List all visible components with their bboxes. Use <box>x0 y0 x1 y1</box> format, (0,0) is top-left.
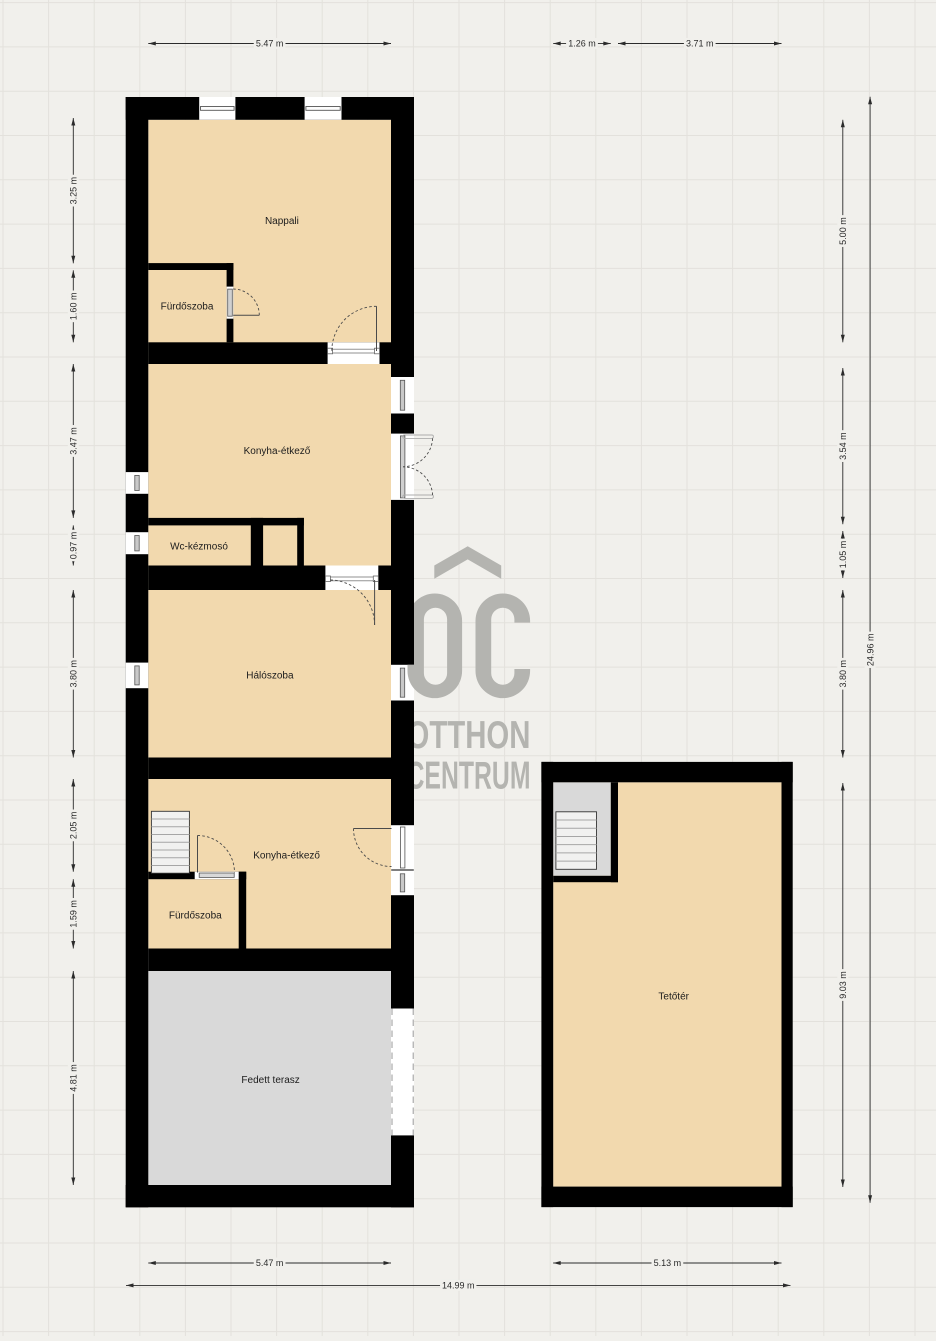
svg-text:Fürdőszoba: Fürdőszoba <box>161 302 214 313</box>
svg-text:4.81 m: 4.81 m <box>68 1064 78 1092</box>
svg-text:Nappali: Nappali <box>265 216 299 227</box>
svg-text:5.13 m: 5.13 m <box>654 1258 682 1268</box>
svg-text:1.26 m: 1.26 m <box>568 39 596 49</box>
svg-text:5.00 m: 5.00 m <box>838 217 848 245</box>
svg-text:24.96 m: 24.96 m <box>865 634 875 667</box>
svg-text:Wc-kézmosó: Wc-kézmosó <box>170 541 228 552</box>
svg-text:3.80 m: 3.80 m <box>69 660 79 688</box>
svg-text:Konyha-étkező: Konyha-étkező <box>253 851 320 862</box>
svg-text:1.05 m: 1.05 m <box>838 541 848 569</box>
svg-text:3.47 m: 3.47 m <box>69 427 79 455</box>
svg-text:OTTHON: OTTHON <box>407 714 531 757</box>
svg-text:5.47 m: 5.47 m <box>256 39 284 49</box>
svg-text:3.71 m: 3.71 m <box>686 39 714 49</box>
svg-text:Tetőtér: Tetőtér <box>658 992 689 1003</box>
svg-text:2.05 m: 2.05 m <box>69 812 79 840</box>
svg-text:Konyha-étkező: Konyha-étkező <box>244 446 311 457</box>
svg-text:Hálószoba: Hálószoba <box>246 671 294 682</box>
svg-text:CENTRUM: CENTRUM <box>407 755 531 798</box>
svg-text:3.25 m: 3.25 m <box>69 177 79 205</box>
svg-text:Fedett terasz: Fedett terasz <box>241 1075 299 1086</box>
svg-text:1.60 m: 1.60 m <box>69 293 79 321</box>
svg-text:3.54 m: 3.54 m <box>838 432 848 460</box>
svg-text:3.80 m: 3.80 m <box>838 660 848 688</box>
svg-text:Fürdőszoba: Fürdőszoba <box>169 911 222 922</box>
svg-text:5.47 m: 5.47 m <box>256 1258 284 1268</box>
svg-text:9.03 m: 9.03 m <box>838 971 848 999</box>
svg-text:0.97 m: 0.97 m <box>69 532 79 560</box>
svg-text:14.99 m: 14.99 m <box>442 1281 475 1291</box>
svg-text:1.59 m: 1.59 m <box>69 900 79 928</box>
